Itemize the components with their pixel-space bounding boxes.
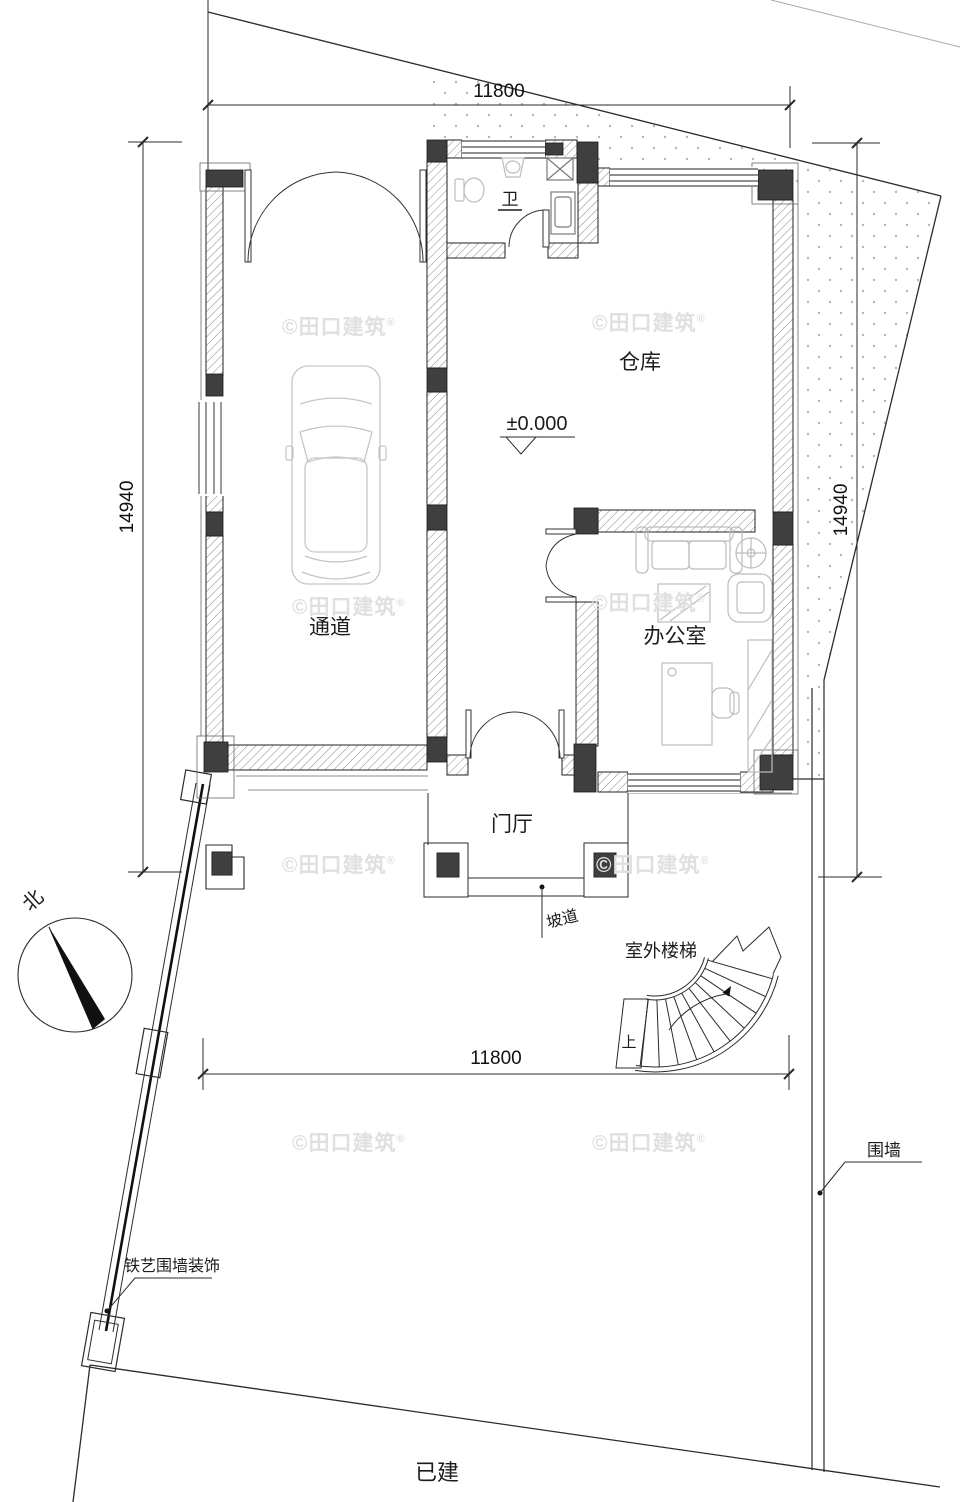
office-door [546, 529, 576, 602]
toilet [455, 178, 484, 202]
bathroom-door [509, 210, 549, 247]
level-value: ±0.000 [506, 413, 567, 435]
watermark: ©田口建筑® [282, 315, 396, 339]
fence-post-top [181, 770, 212, 804]
office-window [628, 771, 740, 793]
car [286, 366, 386, 584]
ramp-leader: 坡道 [540, 885, 581, 939]
dim-left-value: 14940 [117, 481, 138, 534]
doors [245, 170, 576, 758]
existing-building-label: 已建 [415, 1460, 459, 1485]
watermark: ©田口建筑® [592, 591, 706, 615]
ramp [468, 878, 584, 896]
iron-fence-leader: 铁艺围墙装饰 [105, 1257, 221, 1314]
level-marker: ±0.000 [500, 413, 575, 454]
watermark: ©田口建筑® [292, 595, 406, 619]
site-plan-svg: 北 11800 11800 14940 [0, 0, 960, 1502]
fence-label: 围墙 [867, 1141, 901, 1160]
watermark: ©田口建筑® [596, 853, 710, 877]
room-label-office: 办公室 [644, 625, 707, 648]
passage-gate [245, 170, 426, 262]
iron-fence [82, 770, 212, 1372]
perimeter-fence [792, 680, 824, 1472]
cabinet [748, 640, 772, 772]
entrance-door [466, 710, 564, 758]
dim-top-value: 11800 [473, 81, 524, 102]
washbasin [502, 158, 524, 177]
watermark: ©田口建筑® [282, 853, 396, 877]
dim-right-value: 14940 [831, 484, 852, 537]
sofa [636, 527, 742, 573]
desk [662, 663, 712, 745]
dimensions: 11800 11800 14940 14940 [117, 81, 882, 1090]
dim-left: 14940 [117, 137, 182, 877]
desk-chair [712, 688, 739, 718]
room-label-bathroom: 卫 [502, 190, 519, 209]
room-label-foyer: 门厅 [491, 813, 533, 836]
fence-gate-post [82, 1312, 125, 1371]
stair-label: 室外楼梯 [625, 941, 697, 961]
shower [547, 158, 573, 180]
fan-table [736, 538, 766, 568]
warehouse-window [610, 167, 758, 187]
room-label-warehouse: 仓库 [619, 351, 661, 374]
stair-break-symbol [712, 927, 781, 974]
windows [197, 139, 758, 793]
building-walls [206, 140, 793, 792]
porch [424, 793, 628, 897]
room-label-bathroom-group: 卫 [498, 190, 522, 210]
fence-leader: 围墙 [818, 1141, 923, 1196]
passage-window [197, 400, 224, 496]
armchair [728, 574, 772, 622]
dim-bottom-value: 11800 [470, 1048, 521, 1069]
north-label: 北 [18, 885, 48, 915]
yard-gate-post [206, 845, 244, 889]
room-label-passage: 通道 [309, 616, 351, 639]
north-arrow: 北 [18, 885, 132, 1032]
room-labels: 通道 仓库 办公室 门厅 卫 室外楼梯 上 已建 [309, 190, 707, 1485]
office-furniture [636, 527, 772, 772]
watermark: ©田口建筑® [292, 1131, 406, 1155]
watermark: ©田口建筑® [592, 1131, 706, 1155]
leaders: 坡道 围墙 铁艺围墙装饰 [105, 885, 923, 1314]
bathroom-window [462, 139, 545, 159]
north-needle [49, 927, 105, 1029]
ramp-label: 坡道 [545, 907, 580, 932]
dim-bottom: 11800 [198, 1035, 794, 1090]
iron-fence-label: 铁艺围墙装饰 [124, 1257, 220, 1275]
stair-up-label: 上 [621, 1034, 636, 1051]
watermark: ©田口建筑® [592, 311, 706, 335]
laundry-sink [551, 192, 575, 234]
site-plan-canvas: 北 11800 11800 14940 [0, 0, 960, 1502]
